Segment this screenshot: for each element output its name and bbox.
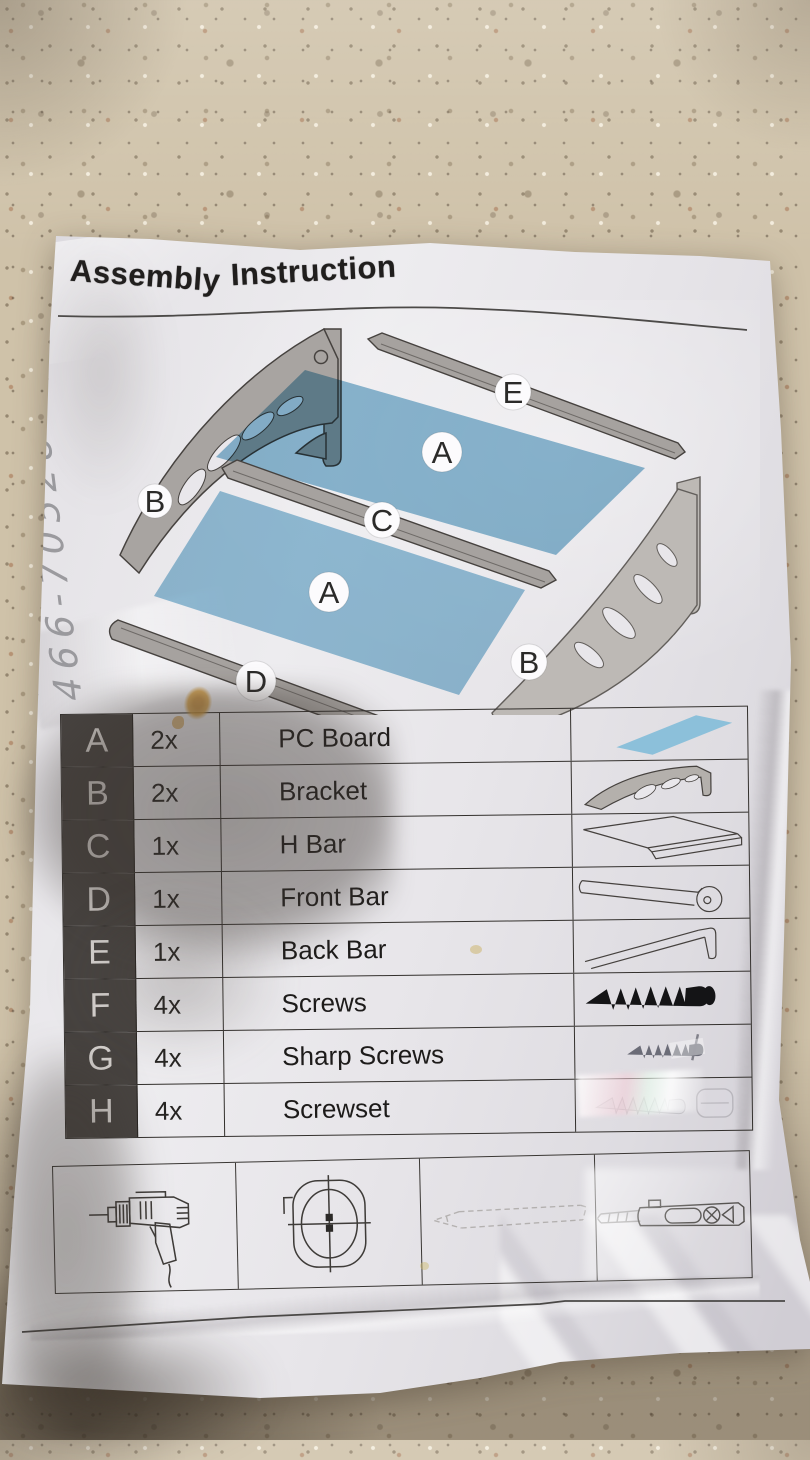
parts-table: A 2x PC Board B 2x Bracket C 1x H: [60, 706, 753, 1139]
label-panel-bottom: A: [319, 575, 340, 610]
part-qty-cell: 4x: [136, 978, 224, 1031]
screwset-icon: [579, 1079, 750, 1131]
part-qty-cell: 1x: [134, 819, 222, 872]
part-image-cell: [572, 760, 749, 814]
title-word-1: Assembly: [69, 253, 222, 299]
h-bar-icon: [575, 814, 746, 866]
part-id-cell: C: [62, 820, 135, 873]
part-id-cell: A: [61, 714, 134, 767]
part-id-cell: E: [64, 926, 137, 979]
part-qty-cell: 1x: [136, 925, 224, 978]
part-id-cell: B: [62, 767, 135, 820]
parts-table-row: E 1x Back Bar: [64, 919, 751, 980]
pc-board-icon: [574, 708, 745, 760]
part-qty-cell: 4x: [138, 1084, 226, 1137]
assembly-diagram: B E A C A B D: [100, 325, 715, 715]
part-image-cell: [574, 972, 751, 1026]
tool-cell-drill: [53, 1163, 239, 1293]
tool-cell-tape-measure: [236, 1159, 423, 1289]
parts-table-row: H 4x Screwset: [66, 1078, 753, 1138]
instruction-sheet-paper: AssemblyInstruction: [0, 0, 810, 1440]
tools-table: [52, 1150, 753, 1294]
tool-cell-utility-knife: [595, 1151, 752, 1280]
label-h-bar: C: [371, 503, 393, 538]
part-name-cell: Front Bar: [222, 868, 574, 924]
footer-rule: [15, 1290, 795, 1350]
front-bar-icon: [576, 867, 747, 919]
part-name-cell: Screwset: [225, 1080, 577, 1136]
stain: [470, 945, 482, 954]
parts-table-row: C 1x H Bar: [62, 813, 749, 874]
part-name-cell: PC Board: [220, 709, 572, 765]
part-id-cell: H: [66, 1085, 139, 1138]
label-right-bracket: B: [519, 645, 540, 680]
utility-knife-icon: [597, 1194, 750, 1237]
parts-table-row: A 2x PC Board: [61, 707, 748, 768]
part-image-cell: [575, 1025, 752, 1079]
part-name-cell: Bracket: [221, 762, 573, 818]
part-qty-cell: 2x: [134, 766, 222, 819]
label-front-bar: D: [245, 664, 267, 699]
part-name-cell: Sharp Screws: [224, 1027, 576, 1083]
parts-table-row: G 4x Sharp Screws: [65, 1025, 752, 1086]
part-image-cell: [573, 866, 750, 920]
part-name-cell: H Bar: [221, 815, 573, 871]
page-title: AssemblyInstruction: [70, 258, 397, 294]
part-image-cell: [572, 813, 749, 867]
label-left-bracket: B: [145, 484, 166, 519]
part-id-cell: F: [64, 979, 137, 1032]
photo-of-sheet: AssemblyInstruction: [0, 0, 810, 1440]
stain: [172, 716, 184, 729]
parts-table-row: D 1x Front Bar: [63, 866, 750, 927]
screw-icon: [577, 973, 748, 1025]
back-bar-icon: [577, 920, 748, 972]
power-drill-icon: [81, 1165, 210, 1290]
pencil-icon: [426, 1198, 591, 1242]
bracket-icon: [575, 761, 746, 813]
stain: [420, 1262, 429, 1270]
tool-cell-pencil: [420, 1155, 598, 1285]
title-word-2: Instruction: [230, 249, 397, 294]
part-image-cell: [576, 1078, 753, 1132]
part-image-cell: [571, 707, 748, 761]
part-name-cell: Screws: [223, 974, 575, 1030]
part-id-cell: G: [65, 1032, 138, 1085]
part-image-cell: [574, 919, 751, 973]
tape-measure-icon: [274, 1168, 384, 1280]
label-back-bar: E: [503, 375, 524, 410]
part-name-cell: Back Bar: [223, 921, 575, 977]
handwritten-note: 466-70528: [8, 373, 92, 701]
parts-table-row: B 2x Bracket: [62, 760, 749, 821]
handwritten-squiggle: [22, 692, 48, 732]
parts-table-row: F 4x Screws: [64, 972, 751, 1033]
sharp-screw-icon: [578, 1026, 749, 1078]
part-id-cell: D: [63, 873, 136, 926]
part-qty-cell: 4x: [137, 1031, 225, 1084]
label-panel-top: A: [432, 435, 453, 470]
part-qty-cell: 1x: [135, 872, 223, 925]
